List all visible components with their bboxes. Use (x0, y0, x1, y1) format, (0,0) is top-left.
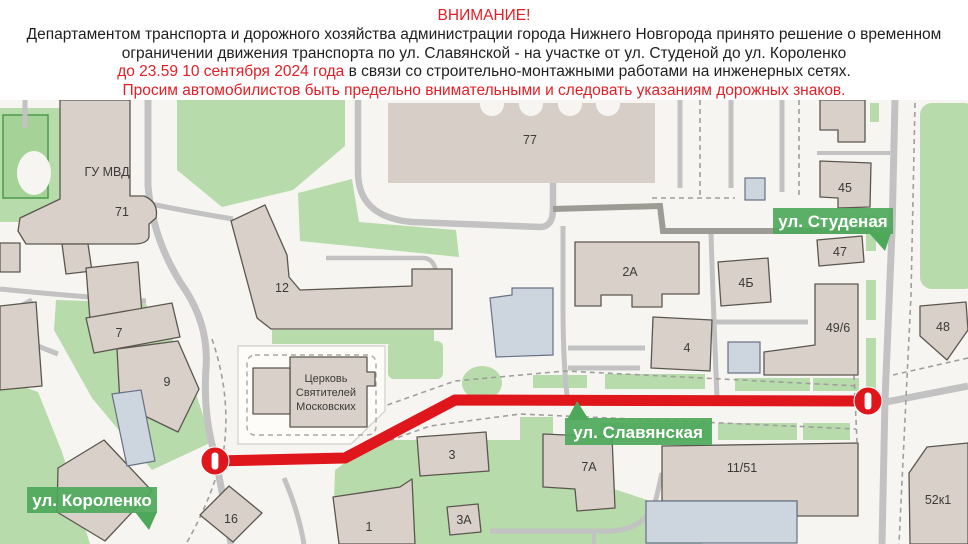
label-4: 4 (684, 341, 691, 355)
label-11-51: 11/51 (727, 461, 757, 475)
svg-text:ул. Короленко: ул. Короленко (32, 491, 152, 510)
label-church-line3: Московских (296, 401, 356, 413)
label-church-line2: Святителей (296, 387, 356, 399)
label-49-6: 49/6 (826, 321, 850, 335)
label-45: 45 (838, 181, 852, 195)
label-48: 48 (936, 320, 950, 334)
notice-text-line-3: до 23.59 10 сентября 2024 года в связи с… (0, 63, 968, 82)
notice-header: ВНИМАНИЕ! Департаментом транспорта и дор… (0, 0, 968, 100)
notice-text-line-1: Департаментом транспорта и дорожного хоз… (0, 26, 968, 45)
label-3: 3 (449, 448, 456, 462)
map-canvas: ГУ МВД 71 77 12 7 9 2А 4 4Б 45 47 49/6 4… (0, 100, 968, 544)
label-52k1: 52к1 (925, 493, 951, 507)
pond-shape (17, 151, 51, 195)
building-4 (651, 317, 712, 371)
notice-request: Просим автомобилистов быть предельно вни… (0, 82, 968, 101)
label-2a: 2А (622, 265, 638, 279)
road-closure-notice-map: ВНИМАНИЕ! Департаментом транспорта и дор… (0, 0, 968, 544)
label-church-line1: Церковь (304, 373, 347, 385)
building-77 (388, 100, 655, 183)
svg-text:ул. Славянская: ул. Славянская (573, 423, 703, 442)
closure-marker-west (201, 447, 229, 475)
label-4b: 4Б (738, 276, 753, 290)
label-7: 7 (116, 326, 123, 340)
city-map: ГУ МВД 71 77 12 7 9 2А 4 4Б 45 47 49/6 4… (0, 100, 968, 544)
notice-attention-title: ВНИМАНИЕ! (0, 7, 968, 26)
label-3a: 3А (456, 513, 472, 527)
svg-text:ул. Студеная: ул. Студеная (778, 212, 887, 231)
label-gu-mvd: ГУ МВД (84, 165, 130, 179)
notice-reason: в связи со строительно-монтажными работа… (344, 63, 851, 80)
label-16: 16 (224, 512, 238, 526)
label-7a: 7А (581, 460, 597, 474)
label-77: 77 (523, 133, 537, 147)
notice-text-line-2: ограничении движения транспорта по ул. С… (0, 45, 968, 64)
label-71: 71 (115, 205, 129, 219)
label-9: 9 (164, 375, 171, 389)
label-1: 1 (366, 520, 373, 534)
closure-marker-east (854, 387, 882, 415)
label-12: 12 (275, 281, 289, 295)
label-47: 47 (833, 245, 847, 259)
notice-deadline: до 23.59 10 сентября 2024 года (117, 63, 344, 80)
